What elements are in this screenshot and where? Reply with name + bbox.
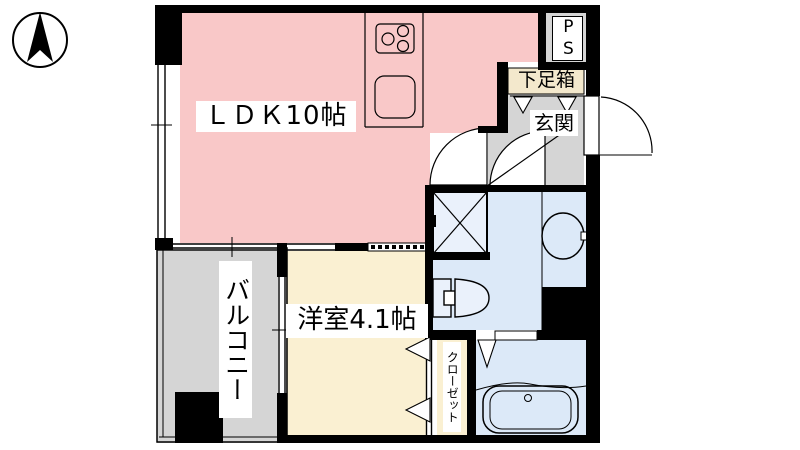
washing-machine-pan-icon [433,192,487,254]
balcony-label: バルコニー [219,261,252,418]
pipe-shaft-label: PS [552,16,583,61]
entrance-label: 玄関 [530,110,578,136]
shoe-cabinet-label: 下足箱 [511,69,582,93]
bath-threshold [495,331,537,340]
sliding-door-ldk-western [368,243,428,251]
window-left [151,65,172,245]
floor-plan-drawing [0,0,800,450]
north-arrow-icon [13,12,67,67]
toilet-icon [433,279,489,317]
closet-label: クローゼット [443,342,461,432]
floor-plan: ＬＤＫ10帖 洋室4.1帖 バルコニー 玄関 下足箱 PS クローゼット [0,0,800,450]
western-room-label: 洋室4.1帖 [286,304,428,338]
ldk-room-label: ＬＤＫ10帖 [196,101,356,132]
front-door [584,96,652,155]
western-room-floor [287,250,430,435]
